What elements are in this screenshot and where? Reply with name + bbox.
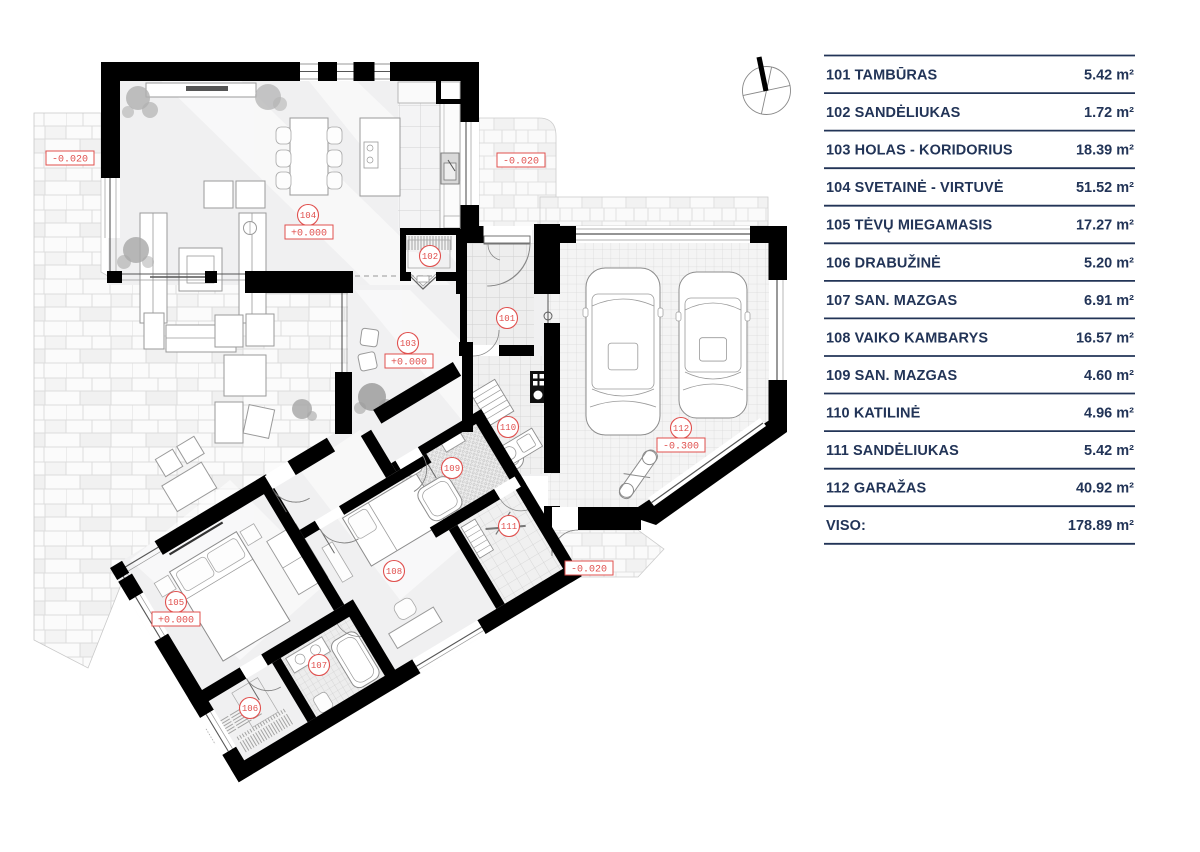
- svg-text:106 DRABUŽINĖ: 106 DRABUŽINĖ: [826, 253, 941, 271]
- svg-text:107 SAN. MAZGAS: 107 SAN. MAZGAS: [826, 293, 957, 309]
- svg-text:-0.300: -0.300: [663, 442, 699, 453]
- svg-text:-0.020: -0.020: [571, 565, 607, 576]
- svg-text:+0.000: +0.000: [391, 358, 427, 369]
- svg-text:108: 108: [386, 567, 402, 577]
- svg-text:102: 102: [422, 252, 438, 262]
- svg-text:105 TĖVŲ MIEGAMASIS: 105 TĖVŲ MIEGAMASIS: [826, 217, 992, 234]
- svg-text:103 HOLAS - KORIDORIUS: 103 HOLAS - KORIDORIUS: [826, 143, 1013, 159]
- svg-text:+0.000: +0.000: [291, 229, 327, 240]
- svg-text:1.72 m²: 1.72 m²: [1084, 105, 1134, 121]
- svg-text:109 SAN. MAZGAS: 109 SAN. MAZGAS: [826, 368, 957, 384]
- svg-text:5.20 m²: 5.20 m²: [1084, 255, 1134, 271]
- svg-text:51.52 m²: 51.52 m²: [1076, 180, 1134, 196]
- svg-text:101: 101: [499, 314, 515, 324]
- svg-text:-0.020: -0.020: [52, 155, 88, 166]
- svg-text:5.42 m²: 5.42 m²: [1084, 68, 1134, 84]
- svg-text:102 SANDĖLIUKAS: 102 SANDĖLIUKAS: [826, 104, 961, 121]
- svg-text:4.96 m²: 4.96 m²: [1084, 406, 1134, 422]
- svg-text:104 SVETAINĖ - VIRTUVĖ: 104 SVETAINĖ - VIRTUVĖ: [826, 179, 1004, 196]
- svg-text:104: 104: [300, 211, 316, 221]
- svg-text:18.39 m²: 18.39 m²: [1076, 143, 1134, 159]
- svg-text:101 TAMBŪRAS: 101 TAMBŪRAS: [826, 67, 938, 84]
- svg-text:-0.020: -0.020: [503, 157, 539, 168]
- svg-text:109: 109: [444, 464, 460, 474]
- svg-text:40.92 m²: 40.92 m²: [1076, 481, 1134, 497]
- svg-text:103: 103: [400, 339, 416, 349]
- svg-text:111: 111: [501, 522, 517, 532]
- svg-text:+0.000: +0.000: [158, 616, 194, 627]
- svg-text:108 VAIKO KAMBARYS: 108 VAIKO KAMBARYS: [826, 330, 988, 346]
- svg-text:107: 107: [311, 661, 327, 671]
- svg-text:5.42 m²: 5.42 m²: [1084, 443, 1134, 459]
- svg-text:16.57 m²: 16.57 m²: [1076, 330, 1134, 346]
- svg-text:110 KATILINĖ: 110 KATILINĖ: [826, 405, 921, 422]
- svg-text:17.27 m²: 17.27 m²: [1076, 218, 1134, 234]
- svg-text:6.91 m²: 6.91 m²: [1084, 293, 1134, 309]
- svg-text:112: 112: [673, 424, 689, 434]
- svg-text:4.60 m²: 4.60 m²: [1084, 368, 1134, 384]
- svg-text:112 GARAŽAS: 112 GARAŽAS: [826, 479, 926, 497]
- svg-text:106: 106: [242, 704, 258, 714]
- svg-text:VISO:: VISO:: [826, 518, 866, 534]
- svg-text:178.89 m²: 178.89 m²: [1068, 518, 1134, 534]
- svg-text:111 SANDĖLIUKAS: 111 SANDĖLIUKAS: [826, 442, 959, 459]
- svg-text:110: 110: [500, 423, 516, 433]
- svg-text:105: 105: [168, 598, 184, 608]
